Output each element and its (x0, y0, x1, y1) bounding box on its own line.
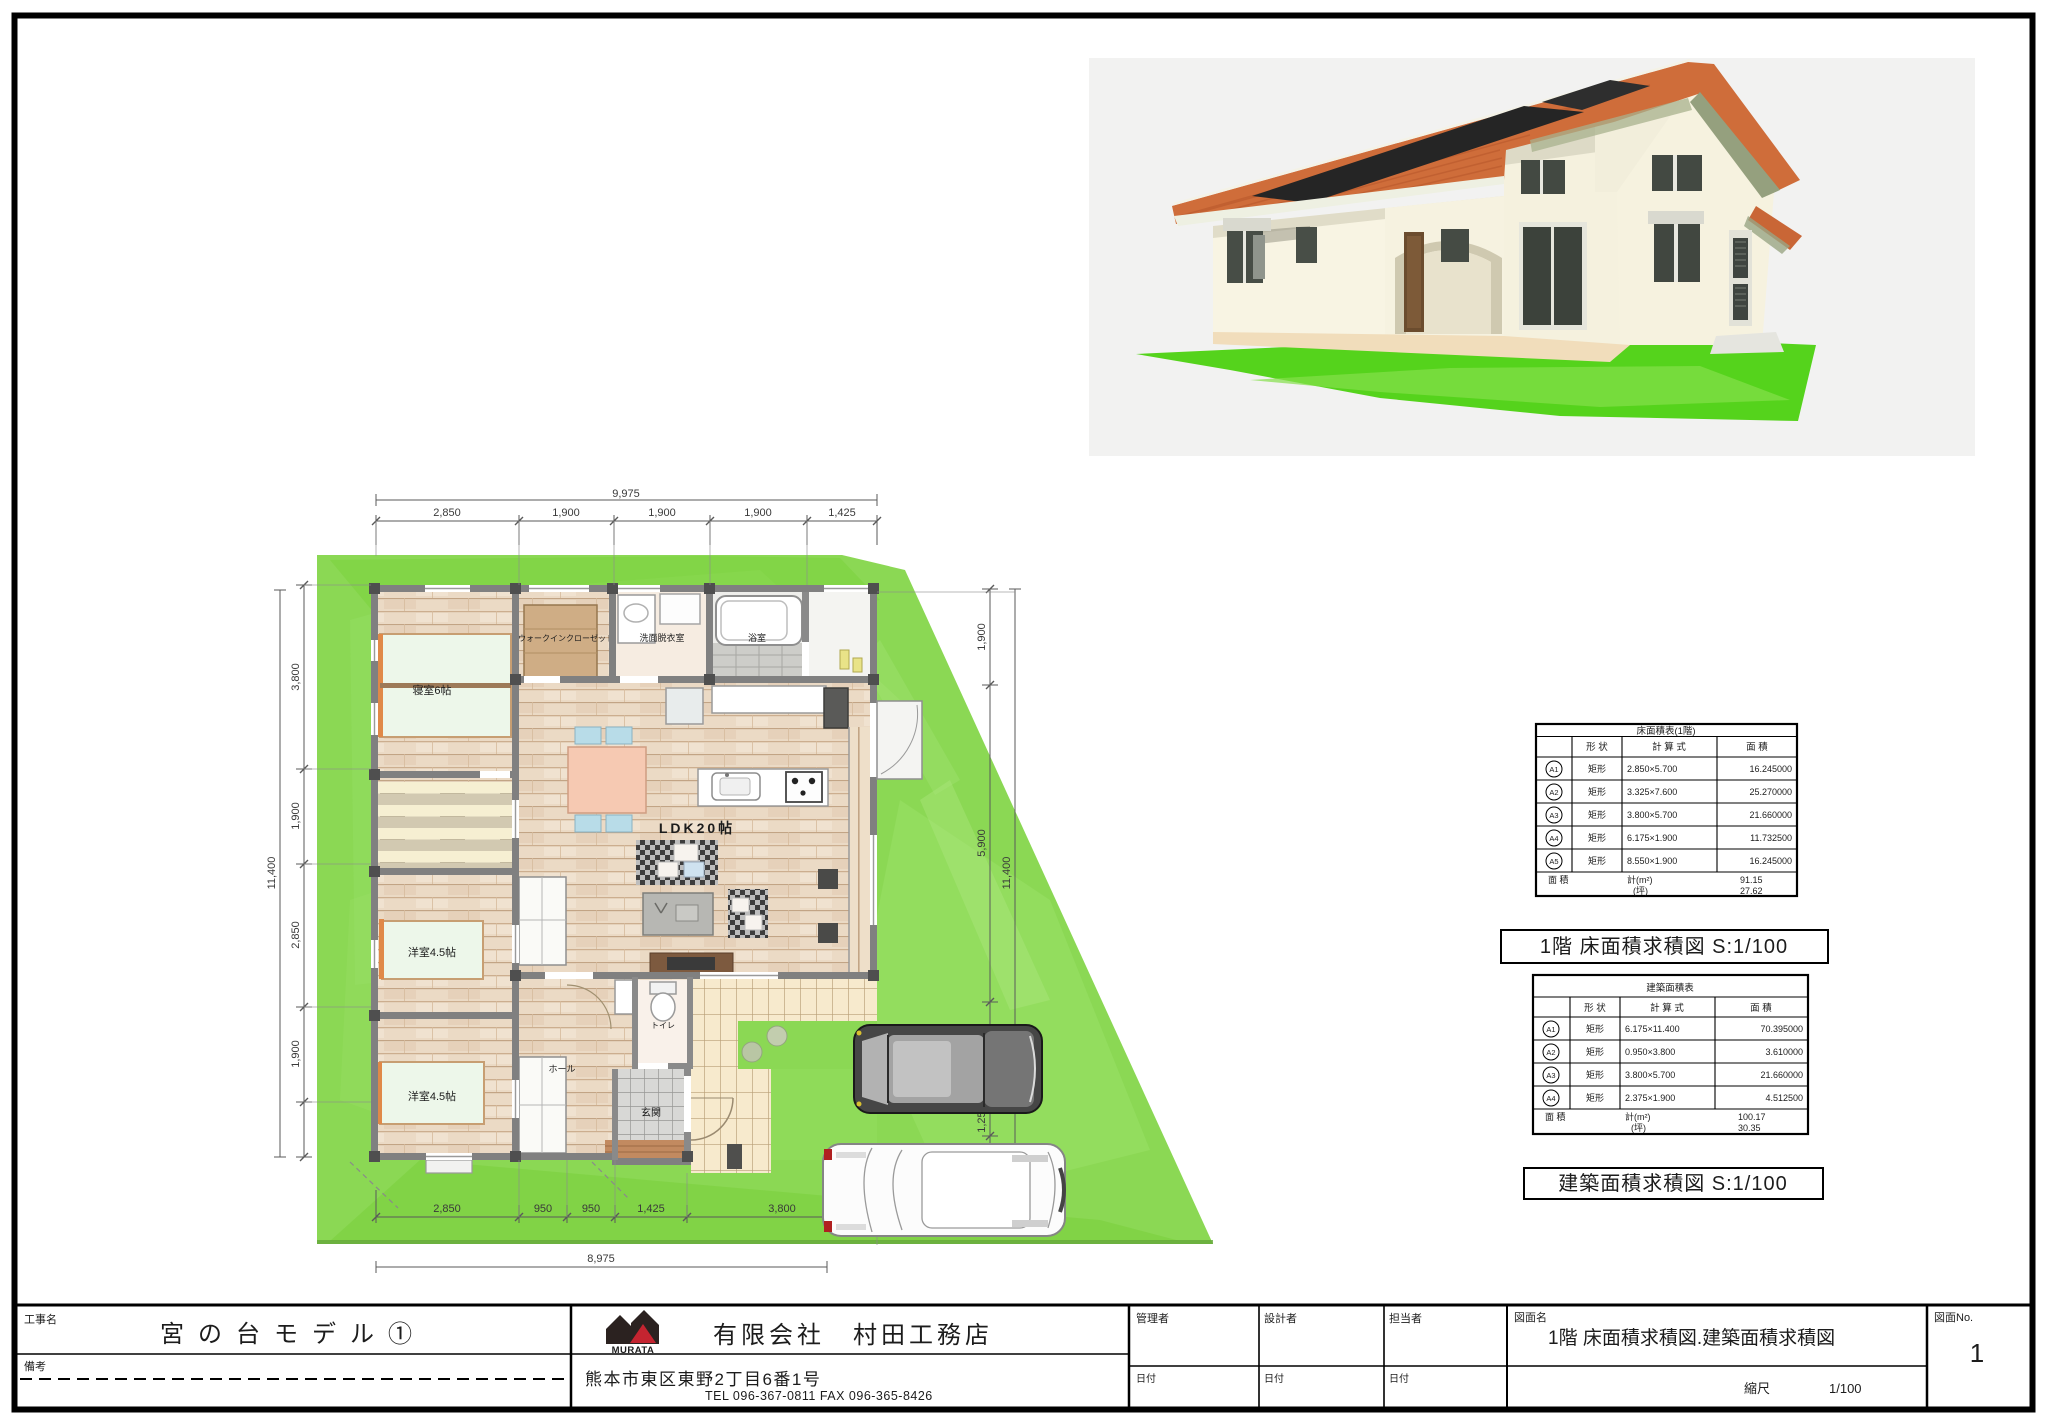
svg-text:面 積: 面 積 (1548, 874, 1569, 885)
svg-text:8,975: 8,975 (587, 1253, 615, 1265)
svg-text:計(m²): 計(m²) (1625, 1111, 1651, 1122)
svg-text:宮の台モデル①: 宮の台モデル① (160, 1321, 426, 1348)
svg-text:洋室4.5帖: 洋室4.5帖 (408, 945, 456, 959)
svg-text:1,900: 1,900 (552, 507, 580, 519)
svg-text:建築面積表: 建築面積表 (1646, 982, 1694, 994)
svg-text:図面No.: 図面No. (1934, 1311, 1973, 1324)
svg-text:1,900: 1,900 (976, 623, 988, 651)
svg-text:11,400: 11,400 (1001, 857, 1013, 890)
svg-text:3.800×5.700: 3.800×5.700 (1627, 810, 1677, 820)
svg-text:矩形: 矩形 (1588, 786, 1606, 797)
svg-text:21.660000: 21.660000 (1749, 810, 1792, 820)
svg-text:ウォークインクローゼット: ウォークインクローゼット (518, 633, 614, 643)
svg-text:床面積表(1階): 床面積表(1階) (1636, 725, 1695, 737)
svg-text:(坪): (坪) (1631, 1123, 1646, 1133)
svg-text:30.35: 30.35 (1738, 1123, 1761, 1133)
svg-text:6.175×11.400: 6.175×11.400 (1625, 1024, 1680, 1034)
svg-text:25.270000: 25.270000 (1749, 787, 1792, 797)
svg-text:建築面積求積図 S:1/100: 建築面積求積図 S:1/100 (1558, 1172, 1788, 1195)
svg-text:1階 床面積求積図 S:1/100: 1階 床面積求積図 S:1/100 (1540, 935, 1788, 958)
svg-text:面 積: 面 積 (1750, 1002, 1772, 1014)
svg-text:矩形: 矩形 (1588, 763, 1606, 774)
svg-text:1,425: 1,425 (637, 1203, 665, 1215)
svg-text:TEL 096-367-0811 FAX 096-365: TEL 096-367-0811 FAX 096-365-8426 (705, 1389, 933, 1403)
svg-text:矩形: 矩形 (1586, 1092, 1604, 1103)
svg-text:工事名: 工事名 (24, 1312, 57, 1326)
svg-text:計 算 式: 計 算 式 (1650, 1002, 1684, 1014)
svg-text:日付: 日付 (1136, 1372, 1156, 1385)
svg-text:1,900: 1,900 (290, 802, 302, 830)
svg-text:5,900: 5,900 (976, 829, 988, 857)
svg-text:担当者: 担当者 (1389, 1311, 1422, 1325)
svg-text:矩形: 矩形 (1588, 855, 1606, 866)
svg-text:面 積: 面 積 (1545, 1111, 1566, 1122)
svg-text:11.732500: 11.732500 (1750, 833, 1792, 843)
svg-text:管理者: 管理者 (1136, 1311, 1169, 1325)
svg-text:(坪): (坪) (1633, 886, 1648, 896)
svg-text:27.62: 27.62 (1740, 886, 1763, 896)
svg-text:3.610000: 3.610000 (1765, 1047, 1803, 1057)
svg-text:矩形: 矩形 (1588, 832, 1606, 843)
svg-text:図面名: 図面名 (1514, 1310, 1547, 1324)
svg-text:21.660000: 21.660000 (1760, 1070, 1803, 1080)
svg-text:計(m²): 計(m²) (1627, 874, 1653, 885)
svg-text:91.15: 91.15 (1740, 875, 1763, 885)
svg-text:形 状: 形 状 (1584, 1002, 1606, 1014)
svg-text:有限会社 村田工務店: 有限会社 村田工務店 (713, 1322, 993, 1349)
svg-text:トイレ: トイレ (651, 1021, 675, 1030)
svg-text:950: 950 (582, 1203, 600, 1215)
svg-text:洗面脱衣室: 洗面脱衣室 (639, 632, 684, 643)
svg-text:日付: 日付 (1389, 1372, 1409, 1385)
svg-text:面 積: 面 積 (1746, 741, 1768, 753)
svg-text:計 算 式: 計 算 式 (1652, 741, 1686, 753)
svg-text:0.950×3.800: 0.950×3.800 (1625, 1047, 1675, 1057)
svg-text:2.850×5.700: 2.850×5.700 (1627, 764, 1677, 774)
svg-text:16.245000: 16.245000 (1749, 856, 1792, 866)
svg-text:8.550×1.900: 8.550×1.900 (1627, 856, 1677, 866)
svg-text:1: 1 (1970, 1338, 1984, 1368)
svg-text:1/100: 1/100 (1829, 1381, 1862, 1396)
svg-text:形 状: 形 状 (1586, 741, 1608, 753)
svg-text:寝室6帖: 寝室6帖 (412, 683, 451, 697)
svg-text:2.375×1.900: 2.375×1.900 (1625, 1093, 1675, 1103)
svg-text:A3: A3 (1549, 811, 1558, 820)
svg-text:9,975: 9,975 (612, 488, 640, 500)
svg-text:A4: A4 (1546, 1094, 1555, 1103)
svg-text:矩形: 矩形 (1586, 1069, 1604, 1080)
svg-text:16.245000: 16.245000 (1749, 764, 1792, 774)
svg-text:LDK20帖: LDK20帖 (659, 820, 735, 836)
svg-text:設計者: 設計者 (1264, 1311, 1297, 1325)
svg-text:A2: A2 (1549, 788, 1558, 797)
svg-text:A3: A3 (1546, 1071, 1555, 1080)
svg-text:MURATA: MURATA (612, 1345, 655, 1356)
svg-text:3,800: 3,800 (768, 1203, 796, 1215)
svg-text:矩形: 矩形 (1586, 1023, 1604, 1034)
svg-text:100.17: 100.17 (1738, 1112, 1766, 1122)
svg-text:1,900: 1,900 (290, 1040, 302, 1068)
svg-text:2,850: 2,850 (290, 921, 302, 949)
svg-text:11,400: 11,400 (266, 857, 278, 890)
svg-text:A1: A1 (1546, 1025, 1555, 1034)
svg-text:1,900: 1,900 (744, 507, 772, 519)
svg-text:ホール: ホール (548, 1064, 575, 1074)
svg-text:3.325×7.600: 3.325×7.600 (1627, 787, 1677, 797)
svg-text:3,800: 3,800 (290, 663, 302, 691)
svg-text:2,850: 2,850 (433, 507, 461, 519)
svg-text:950: 950 (534, 1203, 552, 1215)
svg-text:備考: 備考 (24, 1360, 46, 1373)
svg-text:A1: A1 (1549, 765, 1558, 774)
svg-text:1,900: 1,900 (648, 507, 676, 519)
svg-text:1,425: 1,425 (828, 507, 856, 519)
svg-text:縮尺: 縮尺 (1744, 1381, 1770, 1396)
svg-text:70.395000: 70.395000 (1760, 1024, 1803, 1034)
svg-text:浴室: 浴室 (748, 632, 766, 643)
svg-text:洋室4.5帖: 洋室4.5帖 (408, 1089, 456, 1103)
svg-text:矩形: 矩形 (1588, 809, 1606, 820)
svg-text:矩形: 矩形 (1586, 1046, 1604, 1057)
svg-text:A4: A4 (1549, 834, 1558, 843)
svg-text:4.512500: 4.512500 (1765, 1093, 1803, 1103)
svg-text:6.175×1.900: 6.175×1.900 (1627, 833, 1677, 843)
svg-text:A5: A5 (1549, 857, 1558, 866)
svg-text:1階 床面積求積図.建築面積求積図: 1階 床面積求積図.建築面積求積図 (1548, 1327, 1835, 1349)
svg-text:3.800×5.700: 3.800×5.700 (1625, 1070, 1675, 1080)
svg-text:2,850: 2,850 (433, 1203, 461, 1215)
svg-text:日付: 日付 (1264, 1372, 1284, 1385)
svg-text:A2: A2 (1546, 1048, 1555, 1057)
svg-text:熊本市東区東野2丁目6番1号: 熊本市東区東野2丁目6番1号 (585, 1370, 821, 1389)
svg-text:玄関: 玄関 (641, 1106, 661, 1119)
